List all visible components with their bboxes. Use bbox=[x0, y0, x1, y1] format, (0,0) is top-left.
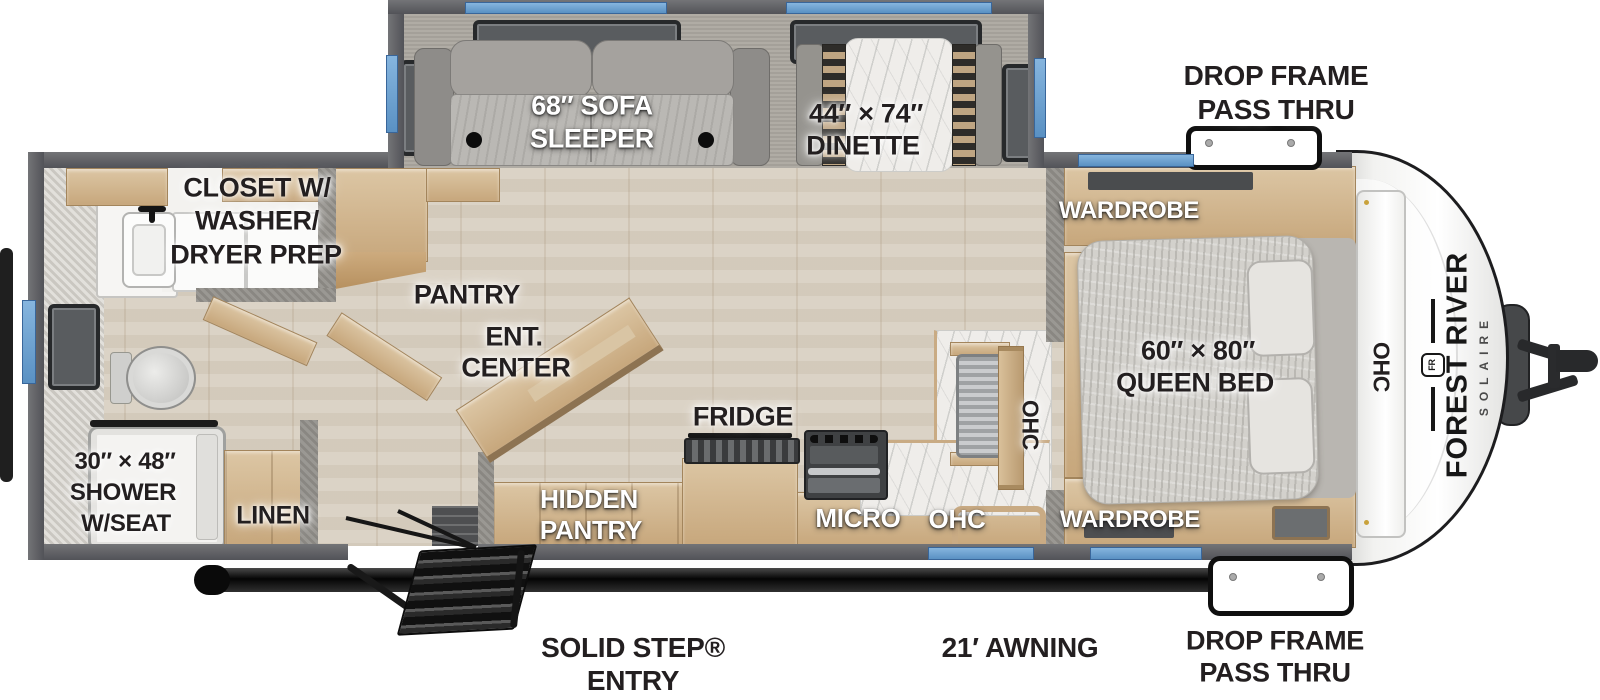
kitchen-bottom-window-strip bbox=[928, 547, 1034, 560]
bath-faucet-stem-icon bbox=[149, 206, 155, 223]
pillow bbox=[1246, 259, 1315, 357]
stove-cooktop bbox=[810, 446, 878, 464]
oven-handle bbox=[808, 468, 880, 475]
rear-window bbox=[48, 304, 100, 390]
sofa-cupholder-left bbox=[466, 132, 482, 148]
slide-left-window-strip bbox=[386, 55, 398, 133]
label-ent-center-line1: ENT. bbox=[485, 324, 542, 351]
pantry-cabinet bbox=[330, 168, 428, 262]
oven-door bbox=[808, 478, 880, 493]
slide-right-window-strip bbox=[1034, 58, 1046, 138]
bedroom-bottom-window-strip bbox=[1090, 547, 1202, 560]
label-hidden-pantry-line2: PANTRY bbox=[540, 517, 642, 543]
screw-icon bbox=[1205, 139, 1213, 147]
label-drop-frame-bottom-line2: PASS THRU bbox=[1199, 660, 1350, 687]
shower-seat bbox=[196, 434, 218, 540]
label-queen-bed-line1: 60″ × 80″ bbox=[1141, 338, 1255, 365]
fridge-handle bbox=[688, 433, 792, 438]
label-linen: LINEN bbox=[236, 504, 310, 529]
brand-name: FOREST RIVER bbox=[1444, 252, 1473, 478]
brand-rule-top bbox=[1431, 299, 1435, 343]
label-wardrobe-bottom: WARDROBE bbox=[1060, 508, 1200, 532]
label-closet-line3: DRYER PREP bbox=[170, 242, 342, 269]
bottom-wall-rear-segment bbox=[28, 544, 348, 560]
top-wall-rear-segment bbox=[28, 152, 402, 168]
shower-glass bbox=[90, 420, 218, 427]
screw-icon bbox=[1287, 139, 1295, 147]
screw-icon bbox=[1317, 573, 1325, 581]
dinette-bench-back-right bbox=[974, 44, 1002, 166]
sofa-arm-left bbox=[414, 48, 454, 166]
cap-trim-bottom bbox=[1398, 502, 1509, 566]
label-ent-center-line2: CENTER bbox=[461, 355, 570, 382]
fridge-top bbox=[684, 438, 800, 464]
label-wardrobe-top: WARDROBE bbox=[1059, 199, 1199, 223]
sofa-back-bolster-left bbox=[450, 40, 592, 98]
pass-thru-door-top bbox=[1186, 126, 1322, 170]
awning-end-cap bbox=[194, 565, 230, 595]
bedroom-tv-shelf bbox=[1088, 172, 1253, 190]
label-ohc-bedroom: OHC bbox=[1370, 342, 1393, 392]
label-dinette-line1: 44″ × 74″ bbox=[809, 101, 923, 128]
brand-rule-bottom bbox=[1431, 387, 1435, 431]
label-drop-frame-top-line2: PASS THRU bbox=[1197, 96, 1354, 124]
upper-cabinet bbox=[426, 168, 500, 202]
label-fridge: FRIDGE bbox=[693, 404, 793, 431]
label-closet-line2: WASHER/ bbox=[195, 208, 319, 235]
label-hidden-pantry-line1: HIDDEN bbox=[540, 486, 638, 512]
bedroom-top-window-strip bbox=[1078, 154, 1194, 167]
label-solid-step-line1: SOLID STEP® bbox=[541, 634, 725, 662]
bottom-right-cabinet-window bbox=[1272, 506, 1330, 540]
label-ohc-kitchen-lower: OHC bbox=[929, 506, 986, 532]
label-awning: 21′ AWNING bbox=[942, 634, 1099, 662]
label-closet-line1: CLOSET W/ bbox=[183, 175, 330, 202]
pass-thru-door-bottom bbox=[1208, 556, 1354, 616]
entry-wall bbox=[478, 452, 494, 544]
sofa-back-bolster-right bbox=[592, 40, 734, 98]
bedroom-wall-upper bbox=[1046, 166, 1064, 342]
sofa-arm-right bbox=[730, 48, 770, 166]
label-shower-line3: W/SEAT bbox=[81, 512, 171, 536]
cap-trim-top bbox=[1398, 150, 1509, 208]
label-shower-line1: 30″ × 48″ bbox=[74, 450, 175, 474]
sofa-cupholder-right bbox=[698, 132, 714, 148]
rear-side-window-strip bbox=[22, 300, 36, 384]
label-solid-step-line2: ENTRY bbox=[587, 667, 679, 695]
label-dinette-line2: DINETTE bbox=[806, 133, 919, 160]
dinette-cushion-right bbox=[952, 44, 976, 166]
screw-dot bbox=[1364, 520, 1369, 525]
screw-icon bbox=[1229, 573, 1237, 581]
stove-knobs bbox=[810, 435, 878, 443]
label-sofa-line1: 68″ SOFA bbox=[531, 93, 653, 120]
bath-sink-basin bbox=[132, 224, 166, 276]
slide-top-window-strip-right bbox=[786, 2, 992, 14]
brand-model: SOLAIRE bbox=[1478, 314, 1490, 416]
rear-bumper bbox=[0, 248, 13, 482]
label-drop-frame-top-line1: DROP FRAME bbox=[1184, 62, 1369, 90]
hitch-coupler bbox=[1556, 350, 1598, 372]
label-shower-line2: SHOWER bbox=[70, 481, 176, 505]
label-micro: MICRO bbox=[815, 505, 900, 531]
label-queen-bed-line2: QUEEN BED bbox=[1116, 370, 1274, 397]
label-pantry: PANTRY bbox=[414, 282, 520, 309]
brand-logo: FR bbox=[1421, 353, 1445, 377]
fridge-cabinet bbox=[682, 458, 798, 547]
bath-overhead-cabinet bbox=[66, 168, 168, 206]
label-ohc-kitchen-wall: OHC bbox=[1019, 400, 1042, 450]
toilet-bowl bbox=[126, 346, 196, 410]
label-sofa-line2: SLEEPER bbox=[530, 126, 654, 153]
label-drop-frame-bottom-line1: DROP FRAME bbox=[1186, 628, 1364, 655]
screw-dot bbox=[1364, 200, 1369, 205]
rv-floorplan: FOREST RIVER SOLAIRE FR bbox=[0, 0, 1600, 700]
slide-top-window-strip-left bbox=[465, 2, 667, 14]
